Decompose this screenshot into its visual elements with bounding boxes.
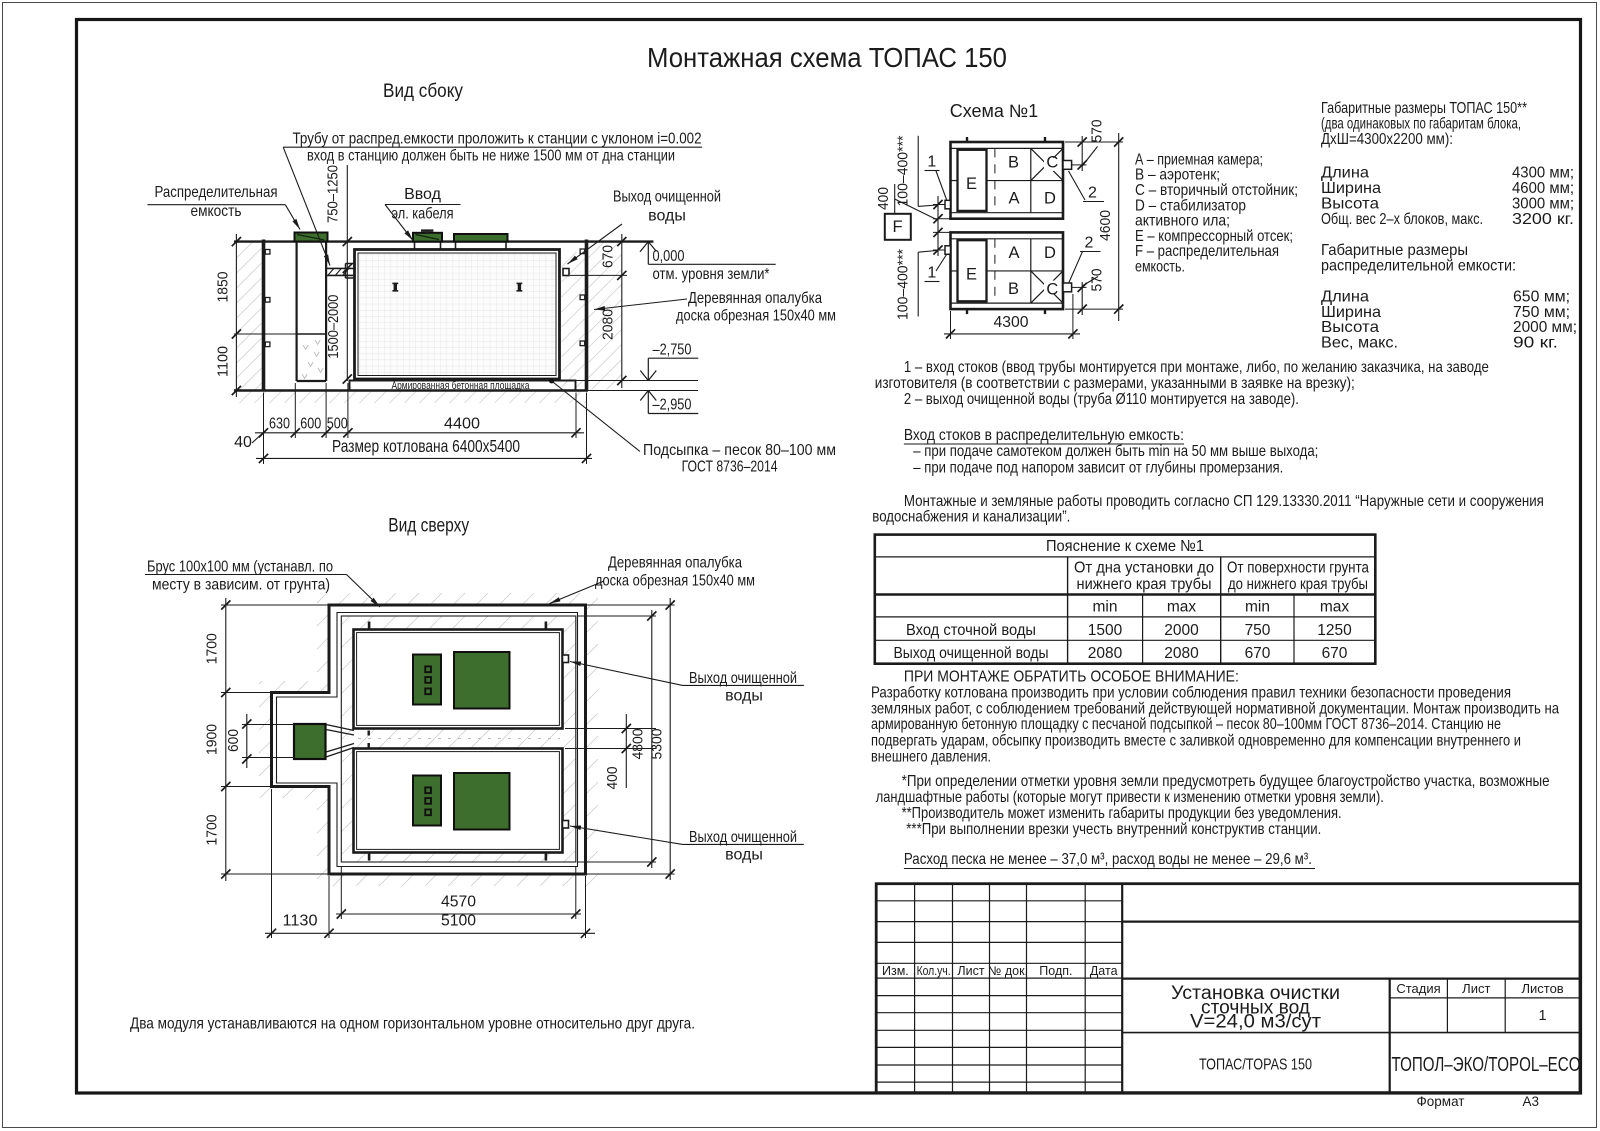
svg-text:А3: А3 — [1522, 1094, 1539, 1109]
svg-text:Деревянная опалубка: Деревянная опалубка — [608, 555, 742, 572]
svg-text:670: 670 — [600, 245, 617, 268]
svg-text:внешнего давления.: внешнего давления. — [871, 749, 991, 766]
svg-text:2000 мм;: 2000 мм; — [1513, 319, 1577, 336]
svg-text:1500–2000: 1500–2000 — [325, 295, 342, 359]
svg-text:нижнего края трубы: нижнего края трубы — [1077, 576, 1212, 593]
svg-text:670: 670 — [1245, 645, 1271, 662]
svg-text:1: 1 — [927, 265, 936, 282]
svg-text:От дна установки до: От дна установки до — [1074, 560, 1214, 577]
svg-text:4300: 4300 — [994, 314, 1029, 331]
svg-text:500: 500 — [327, 416, 348, 433]
svg-text:Разработку котлована производи: Разработку котлована производить при усл… — [871, 684, 1511, 701]
svg-text:Монтажная схема ТОПАС 150: Монтажная схема ТОПАС 150 — [647, 42, 1007, 73]
svg-text:Общ. вес 2–х блоков, макс.: Общ. вес 2–х блоков, макс. — [1321, 211, 1483, 228]
svg-text:100–400***: 100–400*** — [895, 249, 912, 320]
svg-text:400: 400 — [604, 767, 621, 790]
svg-text:изготовителя (в соответствии с: изготовителя (в соответствии с размерами… — [875, 375, 1355, 392]
svg-text:–2,950: –2,950 — [653, 397, 692, 414]
svg-text:Габаритные размеры ТОПАС 150**: Габаритные размеры ТОПАС 150** — [1321, 100, 1527, 117]
svg-text:1500: 1500 — [1088, 622, 1123, 639]
svg-text:4600: 4600 — [1097, 210, 1114, 241]
svg-text:***При выполнении врезки учест: ***При выполнении врезки учесть внутренн… — [906, 821, 1321, 838]
svg-text:Вес, макс.: Вес, макс. — [1321, 335, 1398, 352]
svg-text:Вид сверху: Вид сверху — [388, 516, 469, 537]
svg-text:400: 400 — [875, 187, 892, 210]
svg-text:1700: 1700 — [204, 815, 221, 846]
svg-text:min: min — [1245, 599, 1270, 616]
svg-text:100–400***: 100–400*** — [895, 135, 912, 206]
svg-text:Высота: Высота — [1321, 319, 1379, 336]
svg-text:B: B — [1008, 153, 1019, 171]
svg-text:Трубу от распред.емкости проло: Трубу от распред.емкости проложить к ста… — [293, 131, 702, 148]
svg-text:Монтажные и земляные работы пр: Монтажные и земляные работы проводить со… — [904, 493, 1544, 510]
svg-text:C: C — [1046, 280, 1058, 298]
svg-text:630: 630 — [269, 416, 290, 433]
svg-text:емкость.: емкость. — [1135, 258, 1185, 275]
svg-text:(два одинаковых по габаритам б: (два одинаковых по габаритам блока, — [1321, 116, 1521, 133]
svg-text:E: E — [966, 265, 977, 283]
svg-text:570: 570 — [1089, 120, 1106, 143]
svg-text:Деревянная опалубка: Деревянная опалубка — [688, 290, 822, 307]
svg-text:1100: 1100 — [215, 346, 232, 377]
svg-text:Вход стоков в распределительну: Вход стоков в распределительную емкость: — [904, 427, 1184, 444]
svg-text:Стадия: Стадия — [1396, 981, 1440, 996]
svg-text:4570: 4570 — [441, 894, 476, 911]
svg-text:Выход очищенной: Выход очищенной — [613, 189, 721, 206]
svg-text:4800: 4800 — [629, 729, 646, 760]
svg-text:емкость: емкость — [191, 203, 242, 220]
svg-text:3200 кг.: 3200 кг. — [1512, 211, 1574, 228]
svg-text:–2,750: –2,750 — [653, 342, 692, 359]
svg-text:– при подаче под напором завис: – при подаче под напором зависит от глуб… — [913, 460, 1283, 477]
svg-text:Ввод: Ввод — [404, 186, 442, 203]
svg-text:1250: 1250 — [1317, 622, 1352, 639]
svg-text:Кол.уч.: Кол.уч. — [917, 964, 951, 978]
svg-text:2: 2 — [1088, 185, 1097, 202]
svg-text:0,000: 0,000 — [653, 248, 685, 265]
svg-text:max: max — [1167, 599, 1197, 616]
svg-text:F: F — [892, 218, 902, 236]
svg-text:Дата: Дата — [1090, 964, 1118, 978]
svg-text:F – распределительная: F – распределительная — [1135, 243, 1279, 260]
svg-text:Брус 100х100 мм (устанавл. по: Брус 100х100 мм (устанавл. по — [147, 559, 333, 576]
svg-text:1: 1 — [927, 154, 936, 171]
svg-text:до нижнего края трубы: до нижнего края трубы — [1228, 576, 1368, 593]
svg-text:D: D — [1044, 190, 1056, 208]
svg-text:месту в зависим. от грунта): месту в зависим. от грунта) — [152, 577, 330, 594]
svg-text:Расход песка не менее – 37,0 м: Расход песка не менее – 37,0 м³, расход … — [904, 851, 1312, 868]
svg-text:ТОПОЛ–ЭКО/TOPOL–ECO: ТОПОЛ–ЭКО/TOPOL–ECO — [1392, 1054, 1581, 1076]
svg-text:40: 40 — [234, 434, 252, 451]
svg-text:600: 600 — [225, 729, 242, 752]
svg-text:водоснабжения и канализации”.: водоснабжения и канализации”. — [872, 509, 1070, 526]
svg-text:– при подаче самотеком должен: – при подаче самотеком должен быть min н… — [913, 443, 1318, 460]
svg-text:5100: 5100 — [441, 913, 476, 930]
svg-text:№ док.: № док. — [988, 964, 1028, 978]
svg-text:Схема №1: Схема №1 — [950, 101, 1039, 121]
svg-text:армированную бетонную площадку: армированную бетонную площадку с песчано… — [871, 716, 1501, 733]
svg-text:1850: 1850 — [215, 272, 232, 303]
svg-text:распределительной емкости:: распределительной емкости: — [1321, 257, 1516, 274]
svg-text:4400: 4400 — [444, 416, 480, 433]
svg-text:отм. уровня земли*: отм. уровня земли* — [653, 266, 770, 283]
svg-text:ТОПАС/TOPAS 150: ТОПАС/TOPAS 150 — [1199, 1057, 1312, 1074]
svg-text:В – аэротенк;: В – аэротенк; — [1135, 166, 1220, 183]
svg-text:Подп.: Подп. — [1039, 964, 1072, 978]
svg-text:2080: 2080 — [600, 309, 617, 340]
svg-text:600: 600 — [300, 416, 321, 433]
svg-text:активного ила;: активного ила; — [1135, 212, 1230, 229]
svg-text:max: max — [1320, 599, 1350, 616]
svg-text:ландшафтные работы (которые мо: ландшафтные работы (которые могут привес… — [876, 789, 1384, 806]
svg-text:земляных работ, с соблюдением: земляных работ, с соблюдением требований… — [871, 700, 1559, 717]
svg-text:min: min — [1093, 599, 1118, 616]
svg-text:750–1250: 750–1250 — [325, 165, 342, 223]
svg-text:1: 1 — [1539, 1008, 1547, 1024]
svg-text:Вид сбоку: Вид сбоку — [383, 81, 463, 102]
svg-text:ГОСТ 8736–2014: ГОСТ 8736–2014 — [682, 459, 778, 476]
svg-text:Размер котлована 6400х5400: Размер котлована 6400х5400 — [332, 436, 520, 456]
svg-text:2000: 2000 — [1164, 622, 1199, 639]
svg-text:эл. кабеля: эл. кабеля — [392, 206, 454, 223]
svg-text:**Производитель может изменить: **Производитель может изменить габариты … — [902, 805, 1342, 822]
svg-text:E: E — [966, 175, 977, 193]
svg-text:Формат: Формат — [1417, 1094, 1465, 1109]
svg-text:подвергать ударам, обсыпку про: подвергать ударам, обсыпку производить в… — [871, 733, 1521, 750]
svg-text:доска обрезная 150х40 мм: доска обрезная 150х40 мм — [676, 308, 836, 325]
svg-text:Армированная бетонная площадка: Армированная бетонная площадка — [392, 380, 531, 392]
svg-text:Лист: Лист — [957, 964, 984, 978]
svg-text:1 – вход стоков (ввод трубы м: 1 – вход стоков (ввод трубы монтируется … — [904, 359, 1489, 376]
svg-text:1900: 1900 — [204, 724, 221, 755]
svg-text:Пояснение к схеме №1: Пояснение к схеме №1 — [1046, 538, 1204, 555]
svg-text:Два модуля устанавливаются на: Два модуля устанавливаются на одном гори… — [130, 1016, 695, 1033]
svg-text:Распределительная: Распределительная — [155, 184, 278, 201]
svg-text:2080: 2080 — [1088, 645, 1123, 662]
svg-text:Выход очищенной: Выход очищенной — [689, 829, 797, 846]
svg-text:670: 670 — [1322, 645, 1348, 662]
svg-text:Выход очищенной воды: Выход очищенной воды — [894, 645, 1049, 662]
svg-text:От поверхности грунта: От поверхности грунта — [1227, 560, 1369, 577]
svg-text:воды: воды — [648, 208, 686, 225]
svg-text:2: 2 — [1085, 235, 1094, 252]
svg-text:Листов: Листов — [1521, 981, 1563, 996]
svg-text:доска обрезная 150х40 мм: доска обрезная 150х40 мм — [595, 573, 755, 590]
svg-text:ПРИ МОНТАЖЕ ОБРАТИТЬ ОСОБОЕ ВН: ПРИ МОНТАЖЕ ОБРАТИТЬ ОСОБОЕ ВНИМАНИЕ: — [904, 669, 1239, 686]
svg-text:2 – выход очищенной воды (труб: 2 – выход очищенной воды (труба Ø110 мон… — [904, 391, 1299, 408]
svg-text:Вход сточной воды: Вход сточной воды — [906, 622, 1036, 639]
svg-text:D: D — [1044, 244, 1056, 262]
svg-text:воды: воды — [725, 687, 763, 704]
svg-text:Изм.: Изм. — [882, 964, 909, 978]
svg-text:B: B — [1008, 280, 1019, 298]
svg-text:Ширина: Ширина — [1321, 180, 1381, 197]
svg-text:90 кг.: 90 кг. — [1513, 335, 1558, 352]
svg-text:воды: воды — [725, 846, 763, 863]
svg-text:ДхШ=4300х2200 мм):: ДхШ=4300х2200 мм): — [1321, 131, 1453, 148]
svg-text:570: 570 — [1089, 269, 1106, 292]
svg-text:750: 750 — [1245, 622, 1271, 639]
svg-text:5300: 5300 — [649, 729, 666, 760]
svg-text:1700: 1700 — [204, 633, 221, 664]
svg-text:A: A — [1008, 190, 1019, 208]
svg-text:1130: 1130 — [283, 913, 318, 930]
svg-text:вход в станцию должен быть не: вход в станцию должен быть не ниже 1500 … — [307, 148, 675, 165]
svg-text:Подсыпка – песок 80–100 мм: Подсыпка – песок 80–100 мм — [643, 442, 836, 459]
svg-text:2080: 2080 — [1164, 645, 1199, 662]
svg-text:C: C — [1046, 154, 1058, 172]
svg-text:V=24,0 м3/сут: V=24,0 м3/сут — [1190, 1012, 1321, 1033]
svg-text:A: A — [1008, 244, 1019, 262]
svg-text:*При определении отметки уровн: *При определении отметки уровня земли пр… — [902, 773, 1550, 790]
svg-text:Выход очищенной: Выход очищенной — [689, 670, 797, 687]
svg-text:4600 мм;: 4600 мм; — [1512, 180, 1574, 197]
svg-text:Лист: Лист — [1462, 981, 1490, 996]
